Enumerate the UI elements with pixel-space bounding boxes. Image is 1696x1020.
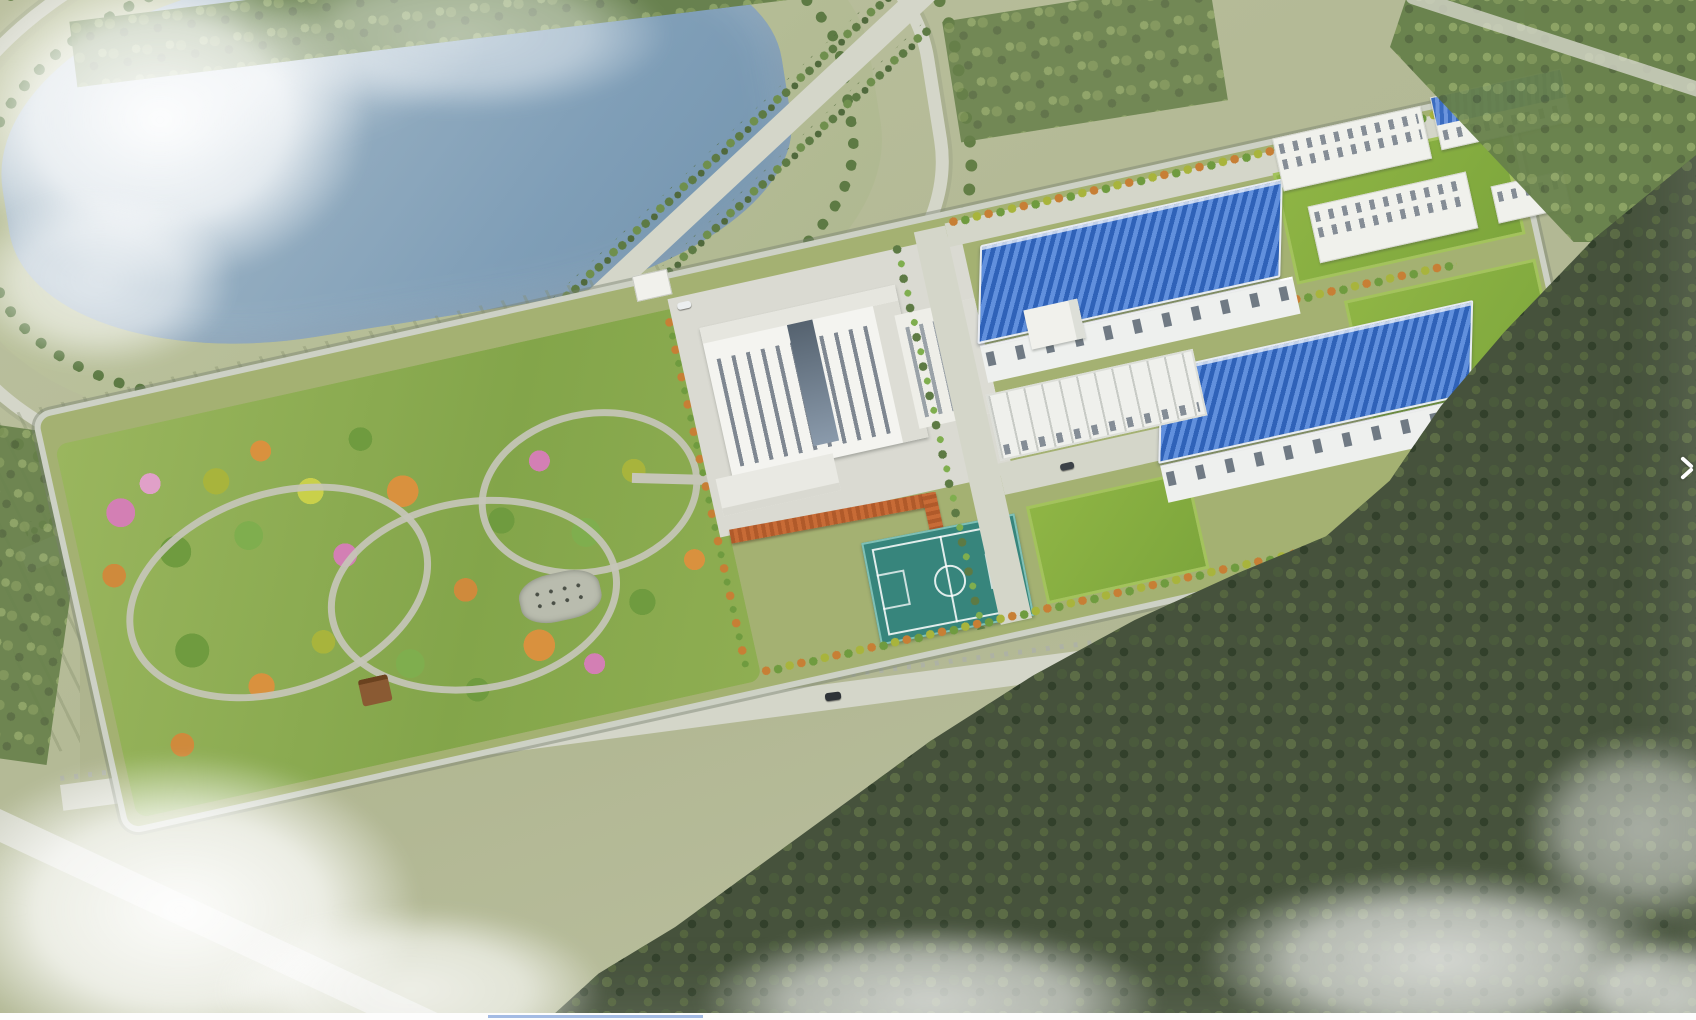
next-arrow-button[interactable]: [1680, 452, 1696, 486]
tree-grove: [942, 0, 1228, 142]
car: [677, 300, 692, 310]
car: [1060, 461, 1075, 471]
bottom-white-band: [0, 1013, 1696, 1020]
car: [825, 691, 842, 701]
fog-cloud: [180, 0, 740, 140]
fog-cloud: [0, 160, 280, 400]
fog-cloud: [1540, 920, 1696, 1020]
benches: [531, 580, 584, 610]
aerial-rendering-scene: [0, 0, 1696, 1020]
fog-cloud: [150, 880, 670, 1020]
bottom-blue-indicator: [488, 1015, 703, 1018]
chevron-right-icon: [1680, 467, 1694, 480]
